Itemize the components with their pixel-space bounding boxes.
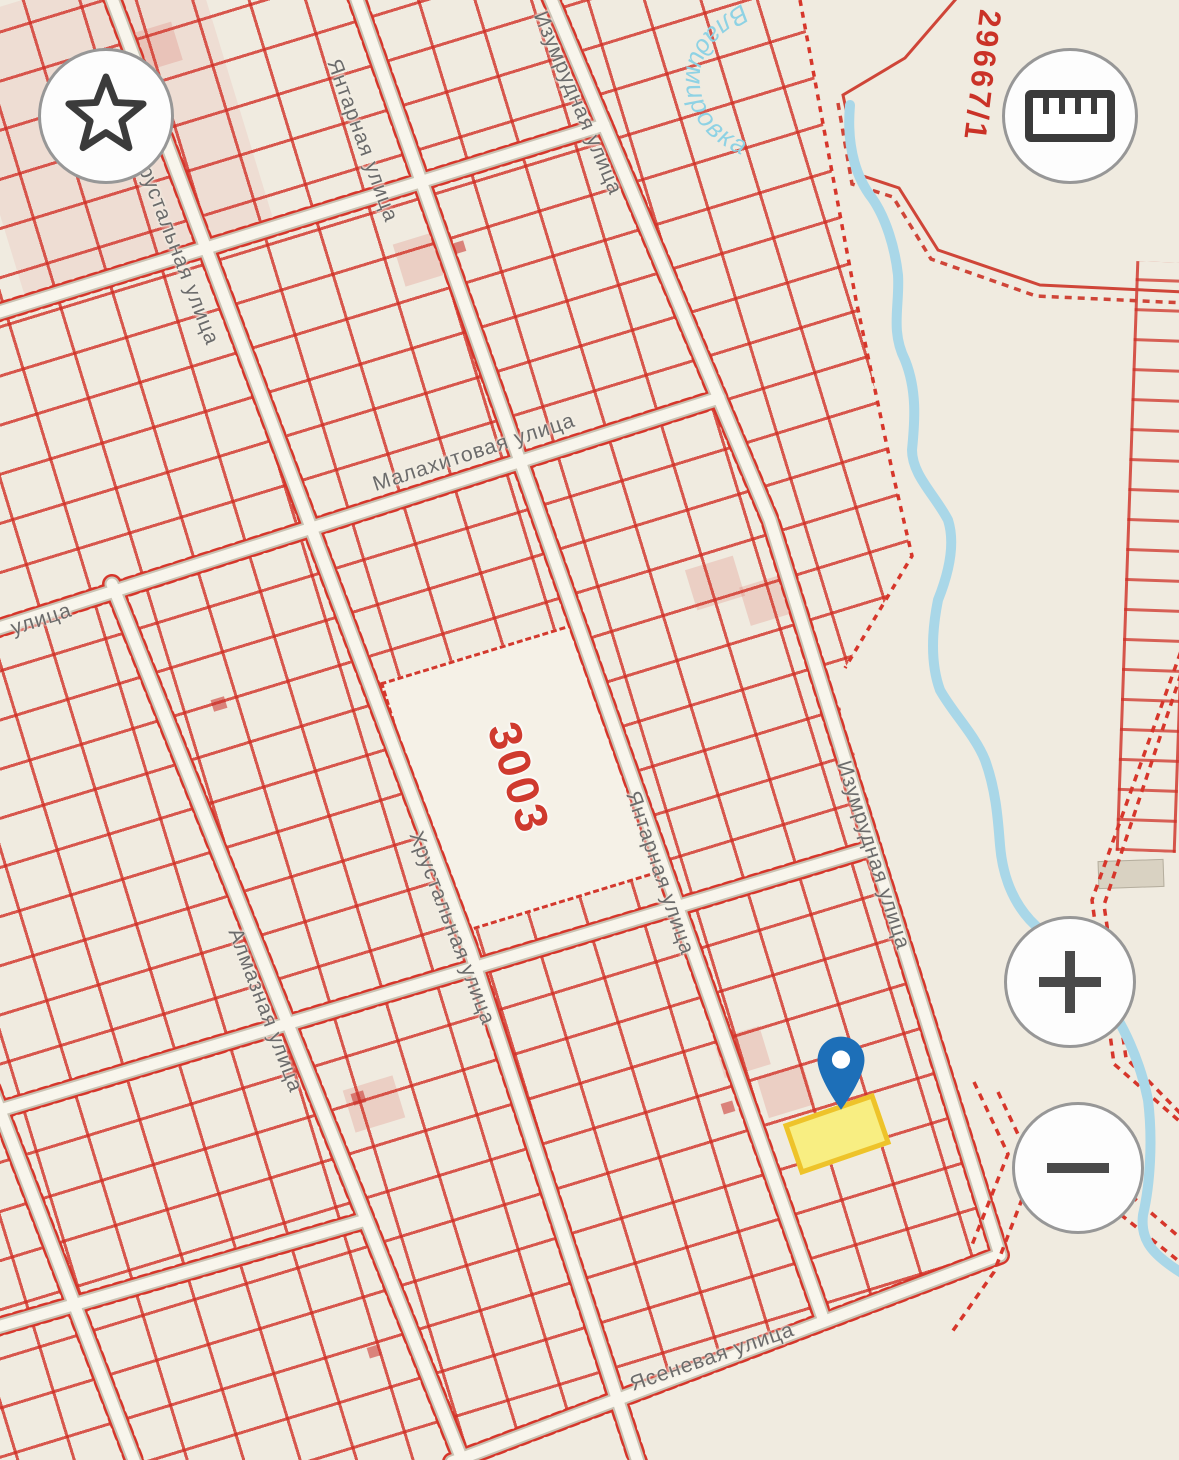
location-pin[interactable] — [809, 1034, 873, 1114]
measure-button[interactable] — [1002, 48, 1138, 184]
zoom-out-button[interactable] — [1012, 1102, 1144, 1234]
star-icon — [63, 73, 149, 159]
map-canvas[interactable]: 3003 29667/1 — [0, 0, 1179, 1460]
street-network — [0, 0, 1000, 1460]
zoom-in-button[interactable] — [1004, 916, 1136, 1048]
minus-icon — [1047, 1163, 1109, 1173]
favorites-button[interactable] — [38, 48, 174, 184]
river-label: Владимировка — [679, 0, 754, 161]
plus-icon — [1039, 951, 1101, 1013]
ruler-icon — [1025, 90, 1115, 142]
